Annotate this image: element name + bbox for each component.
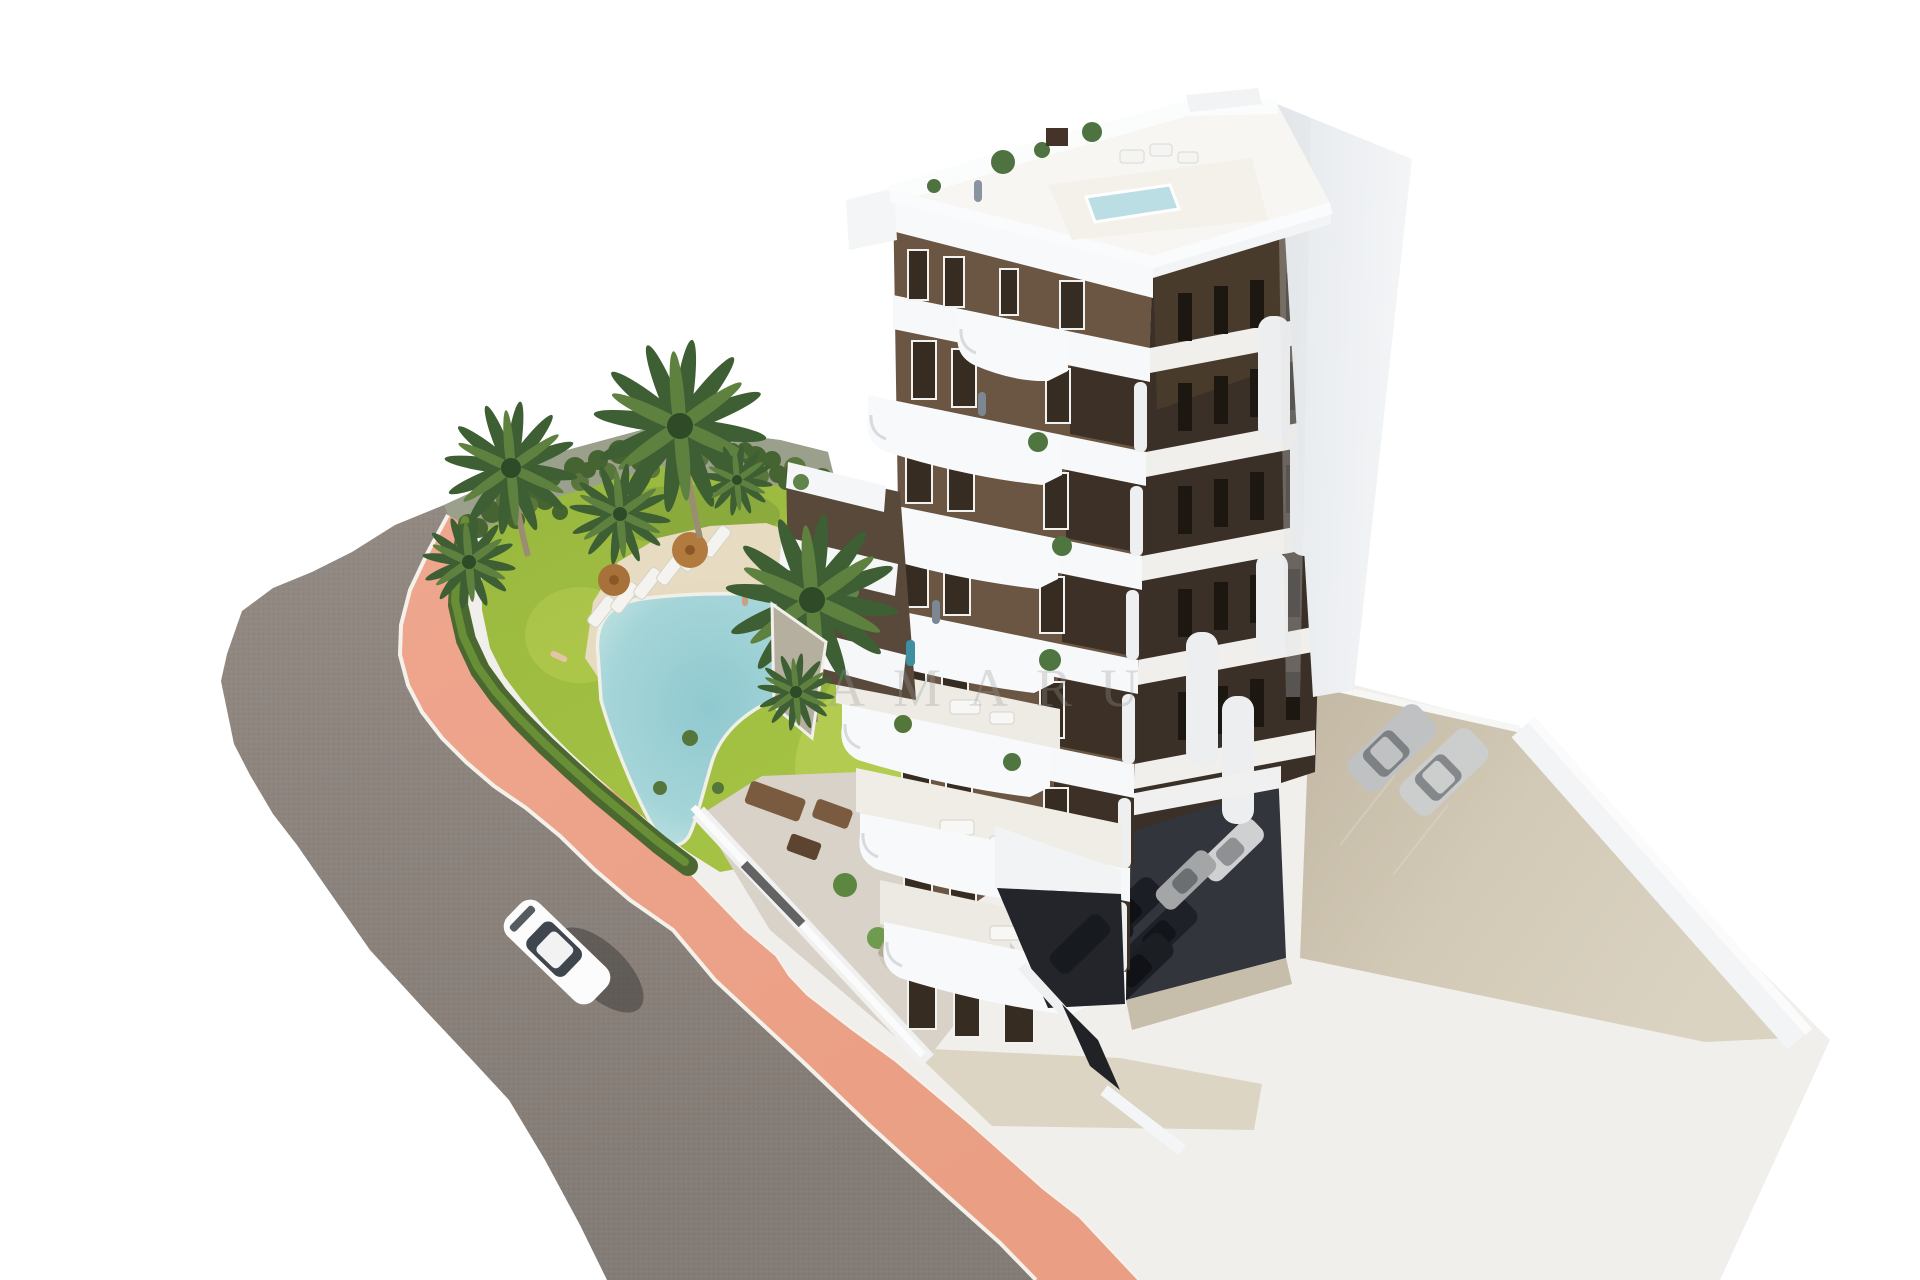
svg-text:AMARU: AMARU bbox=[826, 658, 1167, 718]
